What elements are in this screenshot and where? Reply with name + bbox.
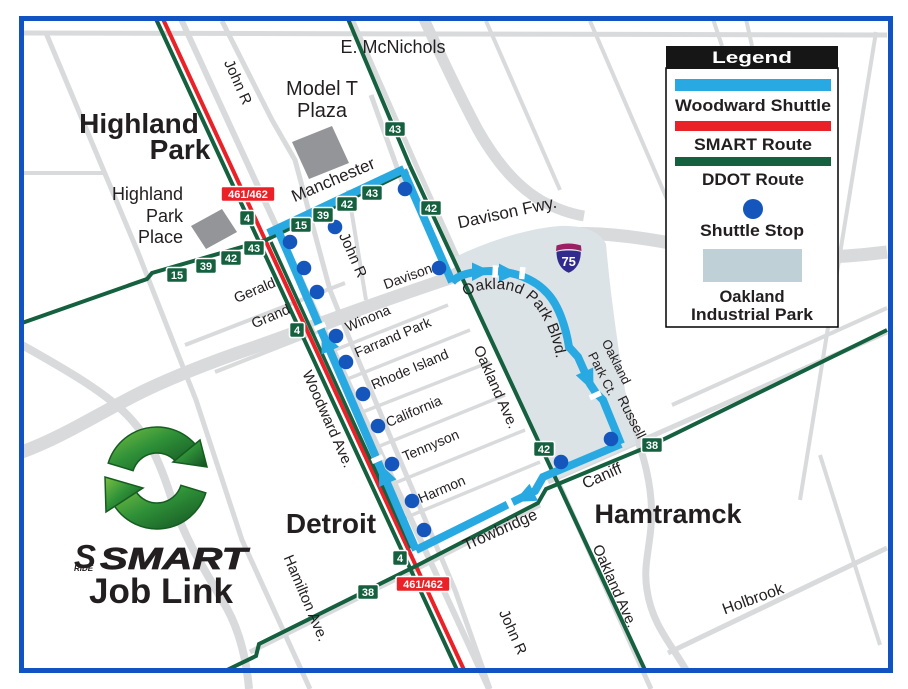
svg-text:Park: Park	[150, 134, 211, 165]
svg-text:15: 15	[295, 220, 307, 232]
svg-text:DDOT Route: DDOT Route	[702, 171, 804, 189]
svg-text:Oakland: Oakland	[719, 288, 784, 306]
svg-text:39: 39	[200, 261, 212, 273]
svg-text:4: 4	[294, 325, 301, 337]
svg-text:75: 75	[561, 254, 575, 269]
svg-text:Industrial Park: Industrial Park	[691, 306, 814, 324]
svg-text:Legend: Legend	[712, 48, 792, 67]
svg-text:E. McNichols: E. McNichols	[340, 37, 445, 57]
svg-text:Model T: Model T	[286, 78, 358, 100]
svg-text:Highland: Highland	[112, 184, 183, 204]
svg-text:42: 42	[538, 444, 550, 456]
svg-text:Plaza: Plaza	[297, 100, 348, 122]
svg-text:Hamtramck: Hamtramck	[594, 499, 742, 529]
svg-text:42: 42	[341, 199, 353, 211]
svg-text:Detroit: Detroit	[286, 508, 376, 539]
svg-text:43: 43	[248, 243, 260, 255]
svg-text:43: 43	[389, 124, 401, 136]
svg-text:39: 39	[317, 210, 329, 222]
svg-text:38: 38	[646, 440, 658, 452]
svg-text:38: 38	[362, 587, 374, 599]
svg-text:42: 42	[425, 203, 437, 215]
svg-text:SMART Route: SMART Route	[694, 136, 812, 154]
svg-text:461/462: 461/462	[403, 579, 443, 591]
svg-text:Woodward Shuttle: Woodward Shuttle	[675, 97, 831, 115]
svg-text:Place: Place	[138, 227, 183, 247]
svg-text:15: 15	[171, 270, 183, 282]
svg-text:4: 4	[244, 213, 251, 225]
svg-text:SMART: SMART	[100, 541, 251, 576]
svg-text:43: 43	[366, 188, 378, 200]
svg-text:Shuttle Stop: Shuttle Stop	[700, 222, 804, 240]
svg-text:Job Link: Job Link	[89, 572, 233, 611]
svg-text:Park: Park	[146, 206, 184, 226]
svg-text:4: 4	[397, 553, 404, 565]
svg-text:461/462: 461/462	[228, 189, 268, 201]
svg-text:42: 42	[225, 253, 237, 265]
